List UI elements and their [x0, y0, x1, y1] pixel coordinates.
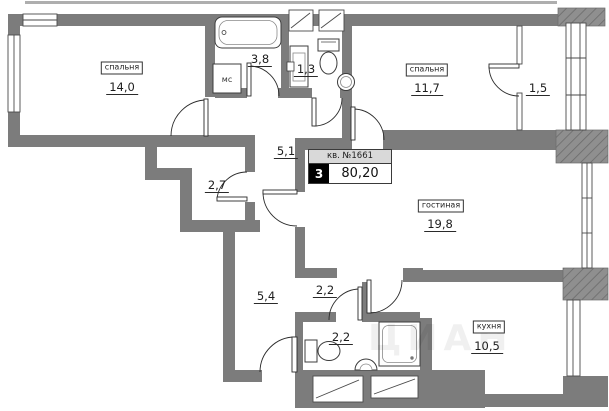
window-bedroom1-left: [8, 35, 20, 112]
room-area-living: 19,8: [424, 218, 456, 232]
window-bedroom1-top: [23, 14, 57, 26]
room-area-bathroom-2: 2,2: [329, 331, 353, 345]
room-area-hall-2: 2,2: [313, 284, 337, 298]
window-bottom-right: [371, 376, 418, 398]
room-area-bedroom-2: 11,7: [411, 82, 443, 96]
room-area-closet: 2,7: [205, 179, 229, 193]
room-area-hallway: 5,1: [274, 145, 298, 159]
door-entrance: [260, 337, 297, 372]
room-label-bedroom-2: спальня: [406, 64, 448, 77]
washing-machine-icon: мс: [213, 64, 241, 93]
sink-wc1-icon: [338, 74, 355, 91]
room-label-kitchen: кухня: [473, 321, 505, 334]
room-area-corridor: 5,4: [254, 290, 278, 304]
room-area-balcony: 1,5: [526, 82, 550, 96]
apartment-number: кв. №1661: [309, 150, 391, 164]
door-wc1: [312, 98, 342, 126]
apartment-rooms-count: 3: [309, 164, 329, 183]
room-area-wc-1: 1,3: [294, 63, 318, 77]
door-bedroom1: [171, 99, 208, 136]
apartment-total-area: 80,20: [329, 164, 391, 183]
door-bathroom1: [247, 63, 279, 96]
toilet-wc1-icon: [318, 39, 339, 74]
door-living: [263, 190, 297, 226]
apartment-info-badge: кв. №1661 3 80,20: [308, 149, 392, 184]
bathtub-icon: [215, 17, 281, 48]
room-label-living: гостиная: [418, 200, 464, 213]
door-balcony: [489, 64, 519, 96]
window-balcony-glazing: [566, 23, 586, 130]
outer-edge-line: [25, 1, 557, 4]
floorplan: ЦИАН: [0, 0, 609, 411]
door-bedroom2: [351, 107, 384, 140]
sink-bathroom2-icon: [355, 359, 377, 370]
room-area-bedroom-1: 14,0: [106, 81, 138, 95]
svg-text:мс: мс: [222, 75, 232, 84]
door-kitchen: [367, 280, 402, 313]
window-wc-left: [289, 10, 313, 31]
room-area-bathroom-1: 3,8: [248, 53, 272, 67]
window-wc-right: [319, 10, 344, 31]
window-kitchen-right: [567, 300, 580, 376]
room-label-bedroom-1: спальня: [101, 62, 143, 75]
balcony-partition-glazing: [517, 26, 522, 130]
window-bottom-left: [313, 376, 363, 402]
room-area-kitchen: 10,5: [471, 340, 503, 354]
window-living-right: [582, 163, 592, 268]
